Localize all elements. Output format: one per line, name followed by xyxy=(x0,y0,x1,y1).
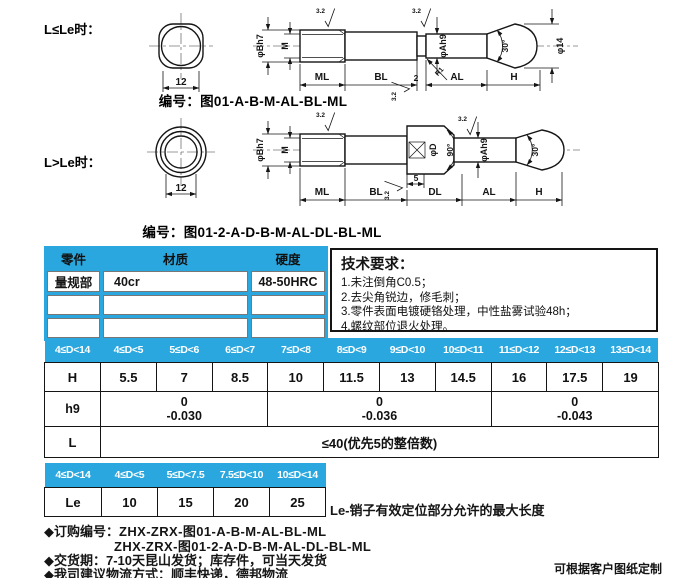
dim-al-label-2: AL xyxy=(482,187,495,198)
le-range-cell: 7.5≤D<10 xyxy=(214,463,270,488)
le-value-cell: 10 xyxy=(102,488,158,517)
svg-text:3.2: 3.2 xyxy=(391,92,398,101)
range-cell: 12≤D<13 xyxy=(547,338,603,363)
range-cell: 5≤D<6 xyxy=(156,338,212,363)
material-cell xyxy=(103,295,248,315)
material-cell: 40cr xyxy=(103,271,248,292)
le-value-cell: 15 xyxy=(158,488,214,517)
h9-row-label: h9 xyxy=(45,392,101,427)
h-value-cell: 8.5 xyxy=(212,363,268,392)
h-value-cell: 5.5 xyxy=(101,363,157,392)
le-table: 4≤D<14 4≤D<5 5≤D<7.5 7.5≤D<10 10≤D<14 Le… xyxy=(44,463,326,517)
dia-14-label: φ14 xyxy=(555,38,565,54)
parts-table-header-row: 零件 材质 硬度 xyxy=(47,249,325,268)
h-value-cell: 14.5 xyxy=(435,363,491,392)
tech-requirement-item: 4.螺纹部位退火处理。 xyxy=(341,320,647,335)
svg-text:3.2: 3.2 xyxy=(316,112,325,119)
svg-text:30°: 30° xyxy=(530,143,540,156)
le-definition-note: Le-销子有效定位部分允许的最大长度 xyxy=(330,500,545,519)
roughness-mark-thread-2: 3.2 xyxy=(316,112,335,131)
le-value-cell: 25 xyxy=(270,488,326,517)
nose-cone-2 xyxy=(516,130,564,170)
l-row-label: L xyxy=(45,427,101,458)
h-row-label: H xyxy=(45,363,101,392)
shaft-section-1 xyxy=(345,32,417,60)
corner-range-cell: 4≤D<14 xyxy=(45,338,101,363)
thread-section-2 xyxy=(300,134,345,166)
drawing-2-code: 编号：图01-2-A-D-B-M-AL-DL-BL-ML xyxy=(142,224,381,240)
dim-dl-label: DL xyxy=(428,187,441,198)
shaft-section-2 xyxy=(345,136,407,164)
material-cell xyxy=(103,318,248,338)
technical-requirements: 技术要求： 1.未注倒角C0.5； 2.去尖角锐边，修毛刺； 3.零件表面电镀硬… xyxy=(330,248,658,332)
h-value-cell: 11.5 xyxy=(324,363,380,392)
roughness-mark-side-2: 3.2 xyxy=(384,181,403,200)
drawing-1: L≤Le时： 12 φBh7 xyxy=(0,0,678,112)
dim-ml-label-1: ML xyxy=(315,72,329,83)
thread-label-2: M xyxy=(280,146,290,154)
dia-b-label-2: φBh7 xyxy=(255,138,265,161)
dim-5: 5 xyxy=(407,173,424,188)
range-cell: 10≤D<11 xyxy=(435,338,491,363)
h9-tolerance-cell: 0 -0.043 xyxy=(491,392,658,427)
h-value-cell: 13 xyxy=(379,363,435,392)
range-cell: 9≤D<10 xyxy=(379,338,435,363)
dim-12-label-2: 12 xyxy=(175,183,187,194)
h-value-cell: 7 xyxy=(156,363,212,392)
drawing-2: L>Le时： 12 φBh7 xyxy=(0,112,678,244)
svg-text:3.2: 3.2 xyxy=(412,8,421,15)
parts-header-hardness: 硬度 xyxy=(251,249,325,268)
part-name-cell: 量规部 xyxy=(47,271,100,292)
svg-text:3.2: 3.2 xyxy=(458,116,467,123)
parts-table-row xyxy=(47,295,325,315)
le-range-cell: 4≤D<5 xyxy=(102,463,158,488)
le-range-cell: 10≤D<14 xyxy=(270,463,326,488)
nose-cone-1 xyxy=(487,24,537,68)
range-cell: 8≤D<9 xyxy=(324,338,380,363)
relief-groove-1 xyxy=(417,36,426,56)
tech-requirements-title: 技术要求： xyxy=(341,253,647,274)
le-corner-range-cell: 4≤D<14 xyxy=(45,463,102,488)
roughness-mark-a-1: 3.2 xyxy=(412,8,431,27)
condition-label-2: L>Le时： xyxy=(44,155,101,170)
dia-a-dimension-2: φAh9 xyxy=(478,122,489,178)
dim-bl-label-1: BL xyxy=(374,72,387,83)
condition-label-1: L≤Le时： xyxy=(44,22,100,37)
tech-requirement-item: 2.去尖角锐边，修毛刺； xyxy=(341,291,647,306)
part-name-cell xyxy=(47,295,100,315)
h9-tolerance-cell: 0 -0.030 xyxy=(101,392,268,427)
dim-ml-label-2: ML xyxy=(315,187,329,198)
le-value-cell: 20 xyxy=(214,488,270,517)
l-row: L ≤40(优先5的整倍数) xyxy=(45,427,659,458)
a-section-1 xyxy=(426,34,487,58)
range-cell: 11≤D<12 xyxy=(491,338,547,363)
dimension-table-header-row: 4≤D<14 4≤D<5 5≤D<6 6≤D<7 7≤D<8 8≤D<9 9≤D… xyxy=(45,338,659,363)
h-value-cell: 19 xyxy=(603,363,659,392)
drawing-1-code: 编号：图01-A-B-M-AL-BL-ML xyxy=(159,93,348,109)
h9-tolerance-cell: 0 -0.036 xyxy=(268,392,491,427)
dim-5-label: 5 xyxy=(414,173,419,183)
h-row: H 5.5 7 8.5 10 11.5 13 14.5 16 17.5 19 xyxy=(45,363,659,392)
range-cell: 4≤D<5 xyxy=(101,338,157,363)
roughness-mark-thread-1: 3.2 xyxy=(316,8,335,27)
le-table-header-row: 4≤D<14 4≤D<5 5≤D<7.5 7.5≤D<10 10≤D<14 xyxy=(45,463,326,488)
end-view-1: 12 xyxy=(149,13,213,92)
dim-12-label: 12 xyxy=(175,77,187,88)
h-value-cell: 17.5 xyxy=(547,363,603,392)
le-row: Le 10 15 20 25 xyxy=(45,488,326,517)
parts-table-row: 量规部 40cr 48-50HRC xyxy=(47,271,325,292)
l-value-cell: ≤40(优先5的整倍数) xyxy=(101,427,659,458)
range-cell: 7≤D<8 xyxy=(268,338,324,363)
svg-text:30°: 30° xyxy=(500,39,510,52)
parts-table: 零件 材质 硬度 量规部 40cr 48-50HRC xyxy=(44,246,328,341)
dia-d-label: φD xyxy=(428,143,438,156)
logistics-note: ◆我司建议物流方式：顺丰快递，德邦物流 xyxy=(44,564,288,578)
svg-text:3.2: 3.2 xyxy=(384,191,391,200)
tech-requirement-item: 3.零件表面电镀硬铬处理，中性盐雾试验48h； xyxy=(341,305,647,320)
hardness-cell: 48-50HRC xyxy=(251,271,325,292)
side-view-2: φBh7 M 3.2 xyxy=(253,112,580,206)
dia-a-dimension-1: φAh9 xyxy=(437,17,448,75)
hardness-cell xyxy=(251,318,325,338)
thread-label-1: M xyxy=(280,42,290,50)
dia-a-label-2: φAh9 xyxy=(479,138,489,161)
dim-h-label-1: H xyxy=(510,72,517,83)
h-value-cell: 16 xyxy=(491,363,547,392)
svg-text:3.2: 3.2 xyxy=(316,8,325,15)
range-cell: 6≤D<7 xyxy=(212,338,268,363)
parts-header-part: 零件 xyxy=(47,249,100,268)
dim-al-label-1: AL xyxy=(450,72,463,83)
le-row-label: Le xyxy=(45,488,102,517)
customization-note: 可根据客户图纸定制 xyxy=(554,560,662,577)
order-code-label: ◆订购编号： xyxy=(44,524,119,539)
dimension-table: 4≤D<14 4≤D<5 5≤D<6 6≤D<7 7≤D<8 8≤D<9 9≤D… xyxy=(44,338,659,458)
dia-b-label-1: φBh7 xyxy=(255,34,265,57)
side-view-1: φBh7 M 3.2 xyxy=(253,8,578,101)
tech-requirement-item: 1.未注倒角C0.5； xyxy=(341,276,647,291)
parts-table-row xyxy=(47,318,325,338)
dim-bl-label-2: BL xyxy=(369,187,382,198)
h-value-cell: 10 xyxy=(268,363,324,392)
range-cell: 13≤D<14 xyxy=(603,338,659,363)
dia-a-label-1: φAh9 xyxy=(438,34,448,57)
parts-header-material: 材质 xyxy=(103,249,248,268)
hardness-cell xyxy=(251,295,325,315)
dim-2-label: 2 xyxy=(414,73,419,83)
end-view-2: 12 xyxy=(147,118,215,198)
le-range-cell: 5≤D<7.5 xyxy=(158,463,214,488)
thread-section-1 xyxy=(300,30,345,62)
h9-row: h9 0 -0.030 0 -0.036 0 -0.043 xyxy=(45,392,659,427)
part-name-cell xyxy=(47,318,100,338)
dim-h-label-2: H xyxy=(535,187,542,198)
spec-sheet: L≤Le时： 12 φBh7 xyxy=(0,0,678,578)
roughness-mark-a-2: 3.2 xyxy=(458,116,477,135)
